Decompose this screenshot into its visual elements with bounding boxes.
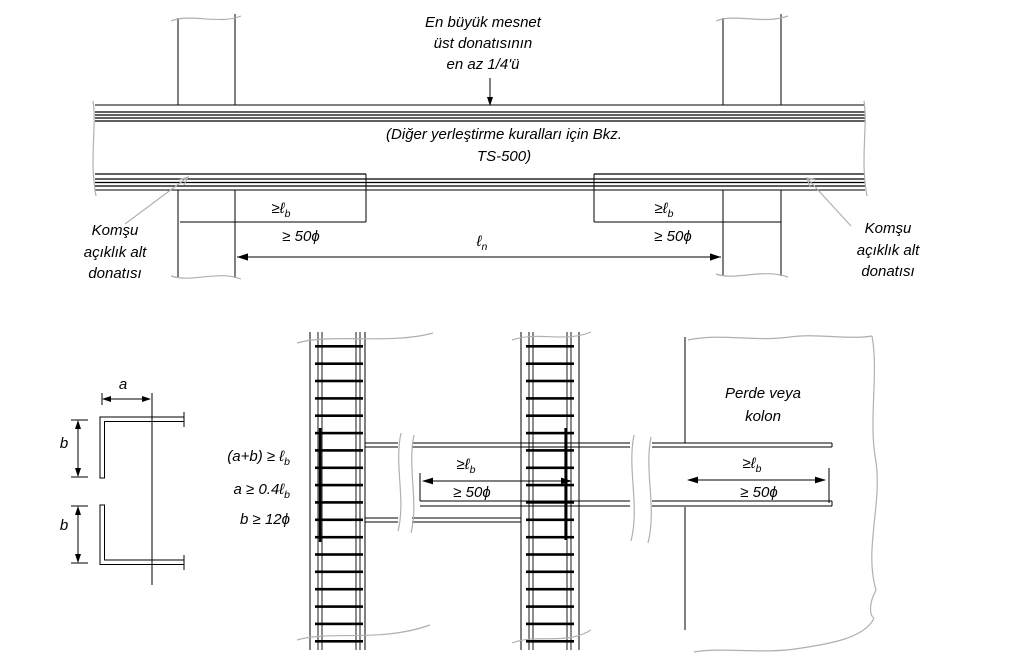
dim-label-lb-span1: ≥ℓb <box>416 454 516 475</box>
wall-label: Perde veya kolon <box>683 383 843 428</box>
mid-note-line: TS-500) <box>343 146 665 168</box>
rebar-detailing-figure: En büyük mesnet üst donatısının en az 1/… <box>0 0 1009 653</box>
span-dimension-ln <box>237 253 721 260</box>
column-2-anchor-hook-bar <box>564 428 567 540</box>
formula-a: a ≥ 0.4ℓb <box>160 479 290 500</box>
hook-dim-a-label: a <box>98 374 148 395</box>
dim-label-ln: ℓn <box>452 231 512 252</box>
mid-note-line: (Diğer yerleştirme kuralları için Bkz. <box>343 124 665 146</box>
dim-label-lb-top-left: ≥ℓb <box>231 198 331 219</box>
formula-a-plus-b: (a+b) ≥ ℓb <box>160 446 290 467</box>
mid-note: (Diğer yerleştirme kuralları için Bkz. T… <box>343 124 665 168</box>
column-elevation-1 <box>310 332 365 650</box>
top-left-column <box>178 14 235 278</box>
adjacent-span-label-left: Komşu açıklık alt donatısı <box>45 220 185 285</box>
formula-b: b ≥ 12ϕ <box>160 509 290 530</box>
dim-label-50phi-span1: ≥ 50ϕ <box>412 482 532 503</box>
hook-dim-b-label-bottom: b <box>39 515 89 536</box>
dim-label-50phi-span2: ≥ 50ϕ <box>699 482 819 503</box>
top-rebar-lines <box>95 112 865 121</box>
adjacent-span-label-right: Komşu açıklık alt donatısı <box>818 218 958 283</box>
dim-label-lb-span2: ≥ℓb <box>702 453 802 474</box>
dim-label-50phi-top-left: ≥ 50ϕ <box>241 226 361 247</box>
top-note-leader <box>487 78 493 106</box>
top-note-line: en az 1/4'ü <box>352 54 614 75</box>
drawing-linework <box>0 0 1009 653</box>
top-note-line: En büyük mesnet <box>352 12 614 33</box>
dim-label-50phi-top-right: ≥ 50ϕ <box>613 226 733 247</box>
dim-label-lb-top-right: ≥ℓb <box>614 198 714 219</box>
top-note-line: üst donatısının <box>352 33 614 54</box>
top-note: En büyük mesnet üst donatısının en az 1/… <box>352 12 614 75</box>
hook-dim-b-label-top: b <box>39 433 89 454</box>
column-1-anchor-hook-bar <box>319 428 322 542</box>
bottom-rebar-lines <box>95 174 865 186</box>
